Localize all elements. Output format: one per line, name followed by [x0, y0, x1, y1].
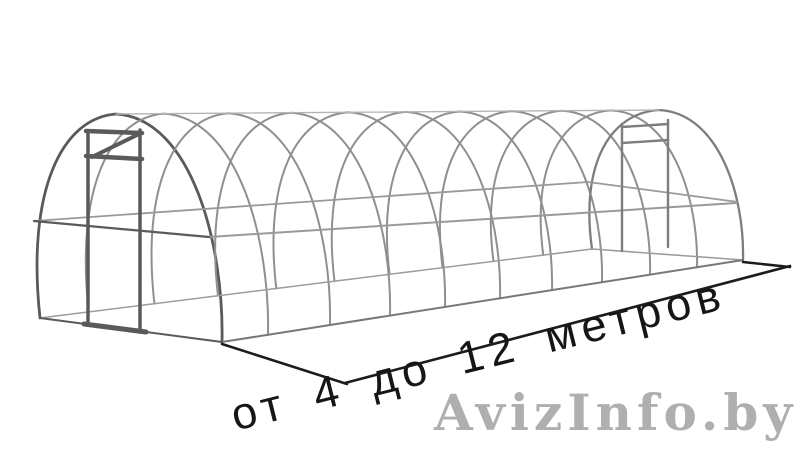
dimension-extension-right [743, 262, 790, 267]
front-door-sill [84, 324, 146, 332]
arch-rib [440, 111, 602, 282]
arch-rib [491, 111, 650, 275]
front-arch [37, 114, 222, 342]
front-door-brace [92, 134, 139, 157]
front-door-header [86, 131, 142, 133]
rear-door-cross-bar [622, 140, 668, 143]
arch-rib [541, 110, 697, 267]
rear-door-header [622, 124, 668, 127]
rear-base-rail [592, 249, 743, 260]
near-side-purlin [209, 203, 736, 237]
far-base-rail [40, 249, 592, 318]
greenhouse-illustration: AvizInfo.by от 4 до 12 метров [0, 0, 800, 452]
arch-rib [387, 112, 552, 291]
watermark-avizinfo: AvizInfo.by [434, 388, 797, 438]
far-side-purlin [34, 182, 588, 221]
front-tie-bar [34, 221, 209, 237]
rear-tie-bar [588, 182, 738, 202]
